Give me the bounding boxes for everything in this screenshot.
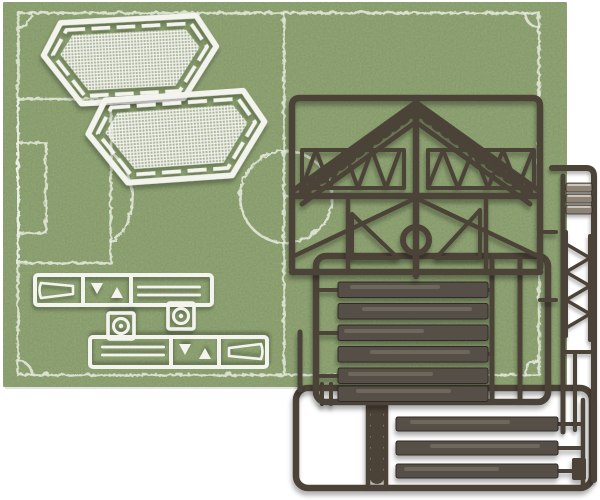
terrace-step-plank (338, 386, 488, 402)
post-rod-piece (137, 294, 201, 297)
plank-grain (404, 467, 499, 471)
plank-grain (362, 307, 472, 311)
plank-grain (430, 444, 540, 448)
truss-zigzag (566, 244, 590, 328)
terrace-step-plank (338, 347, 488, 363)
plank-grain (350, 285, 440, 289)
block-piece (572, 458, 586, 480)
post-rod-piece (137, 286, 201, 289)
ball-disc-hub (119, 324, 123, 328)
terrace-step-plank (338, 282, 488, 298)
post-rod-piece (101, 354, 165, 357)
ball-disc-hub (179, 314, 183, 318)
truss-chords (566, 232, 590, 340)
product-photo (0, 0, 600, 500)
plank-grain (344, 329, 424, 333)
plank-grain (356, 389, 451, 393)
photo-canvas (0, 0, 600, 500)
terrace-step-plank (338, 304, 488, 320)
plank-grain (370, 350, 470, 354)
plank-grain (410, 420, 510, 424)
plank-grain (348, 372, 433, 376)
post-rod-piece (101, 346, 165, 349)
